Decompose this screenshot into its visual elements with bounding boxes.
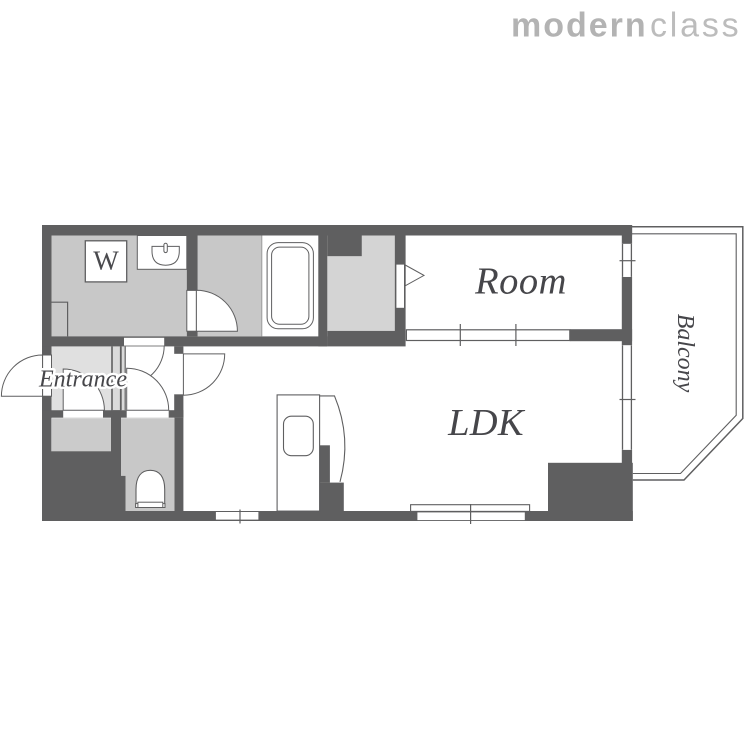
svg-text:Entrance: Entrance: [38, 366, 127, 392]
svg-text:LDK: LDK: [447, 402, 526, 444]
svg-text:modern: modern: [511, 6, 648, 44]
svg-text:class: class: [650, 6, 741, 44]
svg-text:Balcony: Balcony: [672, 314, 698, 393]
svg-text:W: W: [93, 246, 119, 276]
svg-text:Room: Room: [474, 260, 567, 302]
